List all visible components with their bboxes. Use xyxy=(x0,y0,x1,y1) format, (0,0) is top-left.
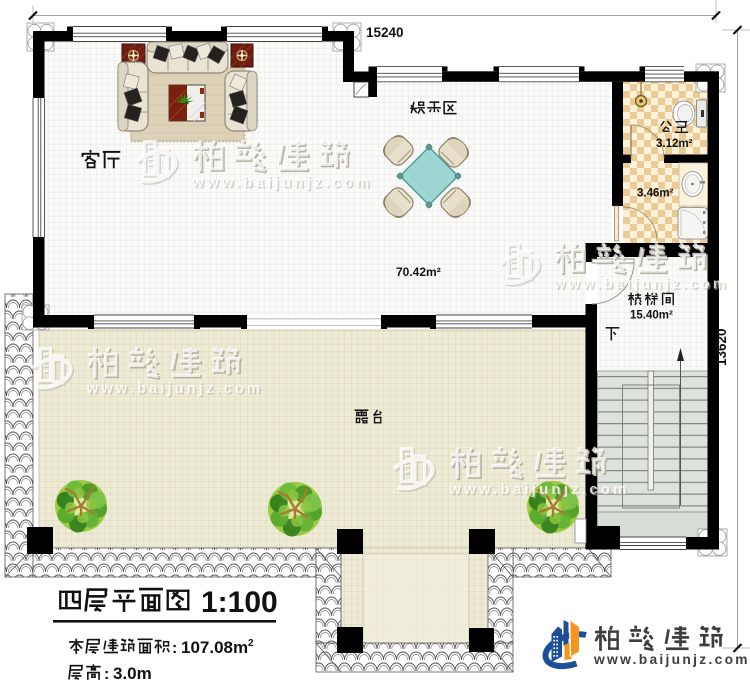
svg-text:www.baijunjz.com: www.baijunjz.com xyxy=(191,174,373,191)
svg-text:www.baijunjz.com: www.baijunjz.com xyxy=(553,277,729,293)
svg-text:3.46m²: 3.46m² xyxy=(637,188,674,200)
svg-text:www.baijunjz.com: www.baijunjz.com xyxy=(448,481,630,498)
svg-text:1:100: 1:100 xyxy=(201,586,278,619)
svg-text::: : xyxy=(104,666,109,683)
svg-text::: : xyxy=(172,640,177,657)
svg-text:3.0m: 3.0m xyxy=(113,664,152,683)
svg-text:70.42m²: 70.42m² xyxy=(396,265,441,279)
svg-text:2: 2 xyxy=(248,638,254,649)
svg-text:www.baijunjz.com: www.baijunjz.com xyxy=(593,652,750,667)
svg-text:www.baijunjz.com: www.baijunjz.com xyxy=(86,381,263,397)
svg-text:15240: 15240 xyxy=(366,25,404,40)
svg-text:3.12m²: 3.12m² xyxy=(656,138,693,150)
svg-text:13620: 13620 xyxy=(714,328,729,366)
svg-text:107.08m: 107.08m xyxy=(181,638,248,657)
svg-text:15.40m²: 15.40m² xyxy=(630,310,673,322)
